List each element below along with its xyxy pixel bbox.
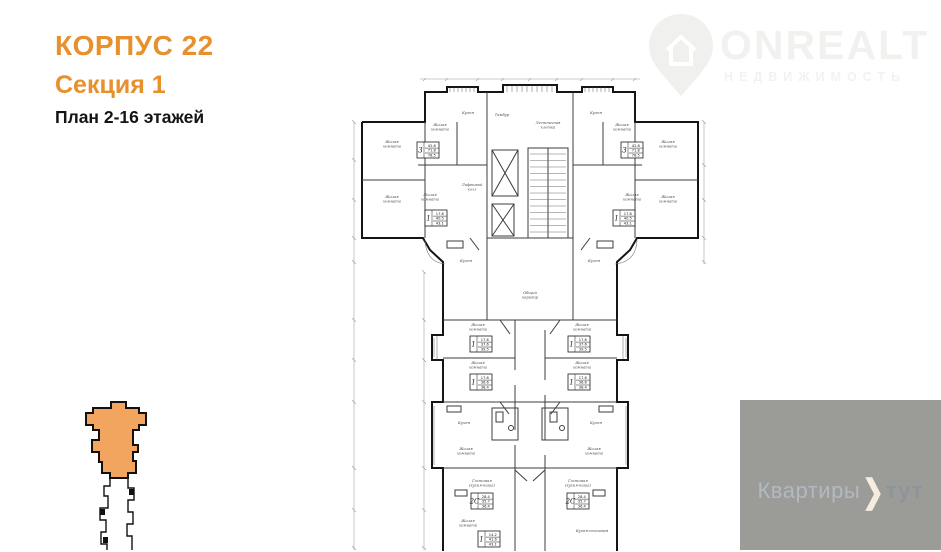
kvartiry-tut-watermark: Квартиры ❯ тут: [740, 478, 941, 504]
apartment-stamps: 342.871.878.5342.871.878.5117.640.543.11…: [417, 142, 643, 547]
svg-text:35.7: 35.7: [578, 500, 586, 504]
brand-subtitle: НЕДВИЖИМОСТЬ: [724, 70, 906, 84]
watermark-suffix: тут: [886, 478, 924, 504]
svg-text:36.6: 36.6: [579, 381, 588, 385]
svg-text:1: 1: [569, 379, 573, 387]
brand-name: ONREALT: [720, 22, 929, 69]
room-label: Гостиная(кухня-ниша): [565, 479, 591, 487]
svg-text:36.4: 36.4: [482, 505, 491, 509]
apartment-stamp: 117.637.639.5: [568, 336, 590, 352]
outer-walls: [362, 85, 698, 551]
svg-text:2С: 2С: [469, 498, 480, 506]
svg-text:37.6: 37.6: [481, 343, 490, 347]
room-label: Кухня-столовая: [575, 529, 609, 533]
interior-walls: [362, 92, 698, 551]
svg-text:38.4: 38.4: [481, 386, 490, 390]
room-label: Жилаякомната: [659, 140, 677, 148]
apartment-stamp: 117.636.638.4: [568, 374, 590, 390]
svg-text:1: 1: [426, 215, 430, 223]
svg-text:43.1: 43.1: [489, 543, 497, 547]
svg-text:17.6: 17.6: [481, 376, 490, 380]
apartment-stamp: 2С28.435.736.4: [565, 493, 589, 509]
room-label: Жилаякомната: [585, 447, 603, 455]
svg-text:35.7: 35.7: [482, 500, 490, 504]
room-label: Жилаякомната: [469, 323, 487, 331]
svg-text:17.6: 17.6: [436, 212, 445, 216]
svg-text:17.6: 17.6: [624, 212, 633, 216]
watermark-prefix: Квартиры: [757, 478, 860, 504]
floor-plan: ЖилаякомнатаЖилаякомнатаКухняТамбурЛестн…: [350, 78, 712, 552]
kvartiry-tut-watermark-band: Квартиры ❯ тут: [740, 400, 941, 550]
svg-text:1: 1: [471, 341, 475, 349]
footprint-balcony-marks: [100, 489, 134, 543]
apartment-stamp: 2С28.435.736.4: [469, 493, 493, 509]
dimension-lines: [352, 78, 706, 550]
svg-text:28.4: 28.4: [482, 495, 491, 499]
svg-text:43.1: 43.1: [624, 222, 632, 226]
room-label: Жилаякомната: [459, 519, 477, 527]
svg-text:1: 1: [471, 379, 475, 387]
room-label: Общийкоридор: [522, 291, 539, 299]
room-label: Жилаякомната: [573, 323, 591, 331]
svg-text:14.2: 14.2: [489, 533, 497, 537]
svg-text:40.5: 40.5: [436, 217, 444, 221]
room-label: Жилаякомната: [457, 447, 475, 455]
room-label: Кухня: [587, 259, 601, 263]
svg-text:39.5: 39.5: [481, 348, 489, 352]
apartment-stamp: 117.636.638.4: [470, 374, 492, 390]
apartment-stamp: 342.871.878.5: [417, 142, 439, 158]
svg-text:17.6: 17.6: [579, 376, 588, 380]
svg-text:42.8: 42.8: [632, 144, 641, 148]
room-label: Кухня: [457, 421, 471, 425]
room-label: Лифтовойхолл: [461, 183, 483, 191]
svg-text:36.6: 36.6: [481, 381, 490, 385]
room-label: Жилаякомната: [383, 140, 401, 148]
svg-text:78.5: 78.5: [428, 154, 436, 158]
room-labels: ЖилаякомнатаЖилаякомнатаКухняТамбурЛестн…: [383, 111, 677, 533]
room-label: Гостиная(кухня-ниша): [469, 479, 495, 487]
svg-text:3: 3: [418, 147, 423, 155]
room-label: Кухня: [589, 111, 603, 115]
room-label: Жилаякомната: [383, 195, 401, 203]
room-label: Жилаякомната: [613, 123, 631, 131]
svg-text:2С: 2С: [565, 498, 576, 506]
svg-text:39.5: 39.5: [579, 348, 587, 352]
apartment-stamp: 342.871.878.5: [621, 142, 643, 158]
svg-text:41.6: 41.6: [489, 538, 498, 542]
room-label: Жилаякомната: [421, 193, 439, 201]
svg-text:3: 3: [622, 147, 627, 155]
room-label: Жилаякомната: [659, 195, 677, 203]
room-label: Тамбур: [495, 113, 510, 117]
svg-text:43.1: 43.1: [436, 222, 444, 226]
svg-text:17.6: 17.6: [579, 338, 588, 342]
room-label: Кухня: [459, 259, 473, 263]
svg-text:71.8: 71.8: [428, 149, 437, 153]
svg-text:37.6: 37.6: [579, 343, 588, 347]
chevron-icon: ❯: [862, 475, 884, 508]
building-title: КОРПУС 22: [55, 30, 214, 62]
svg-text:1: 1: [569, 341, 573, 349]
section-title: Секция 1: [55, 71, 214, 100]
svg-text:71.8: 71.8: [632, 149, 641, 153]
svg-text:36.4: 36.4: [578, 505, 587, 509]
floors-subtitle: План 2-16 этажей: [55, 107, 214, 128]
room-label: Кухня: [589, 421, 603, 425]
svg-text:28.4: 28.4: [578, 495, 587, 499]
room-label: Кухня: [461, 111, 475, 115]
apartment-stamp: 117.640.543.1: [613, 210, 635, 226]
apartment-stamp: 117.637.639.5: [470, 336, 492, 352]
svg-text:38.4: 38.4: [579, 386, 588, 390]
section-locator-minimap: [78, 396, 150, 550]
room-label: Жилаякомната: [623, 193, 641, 201]
title-block: КОРПУС 22 Секция 1 План 2-16 этажей: [55, 30, 214, 128]
room-label: Жилаякомната: [469, 361, 487, 369]
svg-text:1: 1: [614, 215, 618, 223]
room-label: Лестничнаяклетка: [535, 121, 562, 129]
room-label: Жилаякомната: [573, 361, 591, 369]
svg-text:1: 1: [479, 536, 483, 544]
apartment-stamp: 117.640.543.1: [425, 210, 447, 226]
apartment-stamp: 114.241.643.1: [478, 531, 500, 547]
svg-text:78.5: 78.5: [632, 154, 640, 158]
svg-text:17.6: 17.6: [481, 338, 490, 342]
svg-text:42.8: 42.8: [428, 144, 437, 148]
page: { "header": { "building": "КОРПУС 22", "…: [0, 0, 941, 550]
room-label: Жилаякомната: [431, 123, 449, 131]
section-highlight: [86, 402, 146, 478]
svg-text:40.5: 40.5: [624, 217, 632, 221]
